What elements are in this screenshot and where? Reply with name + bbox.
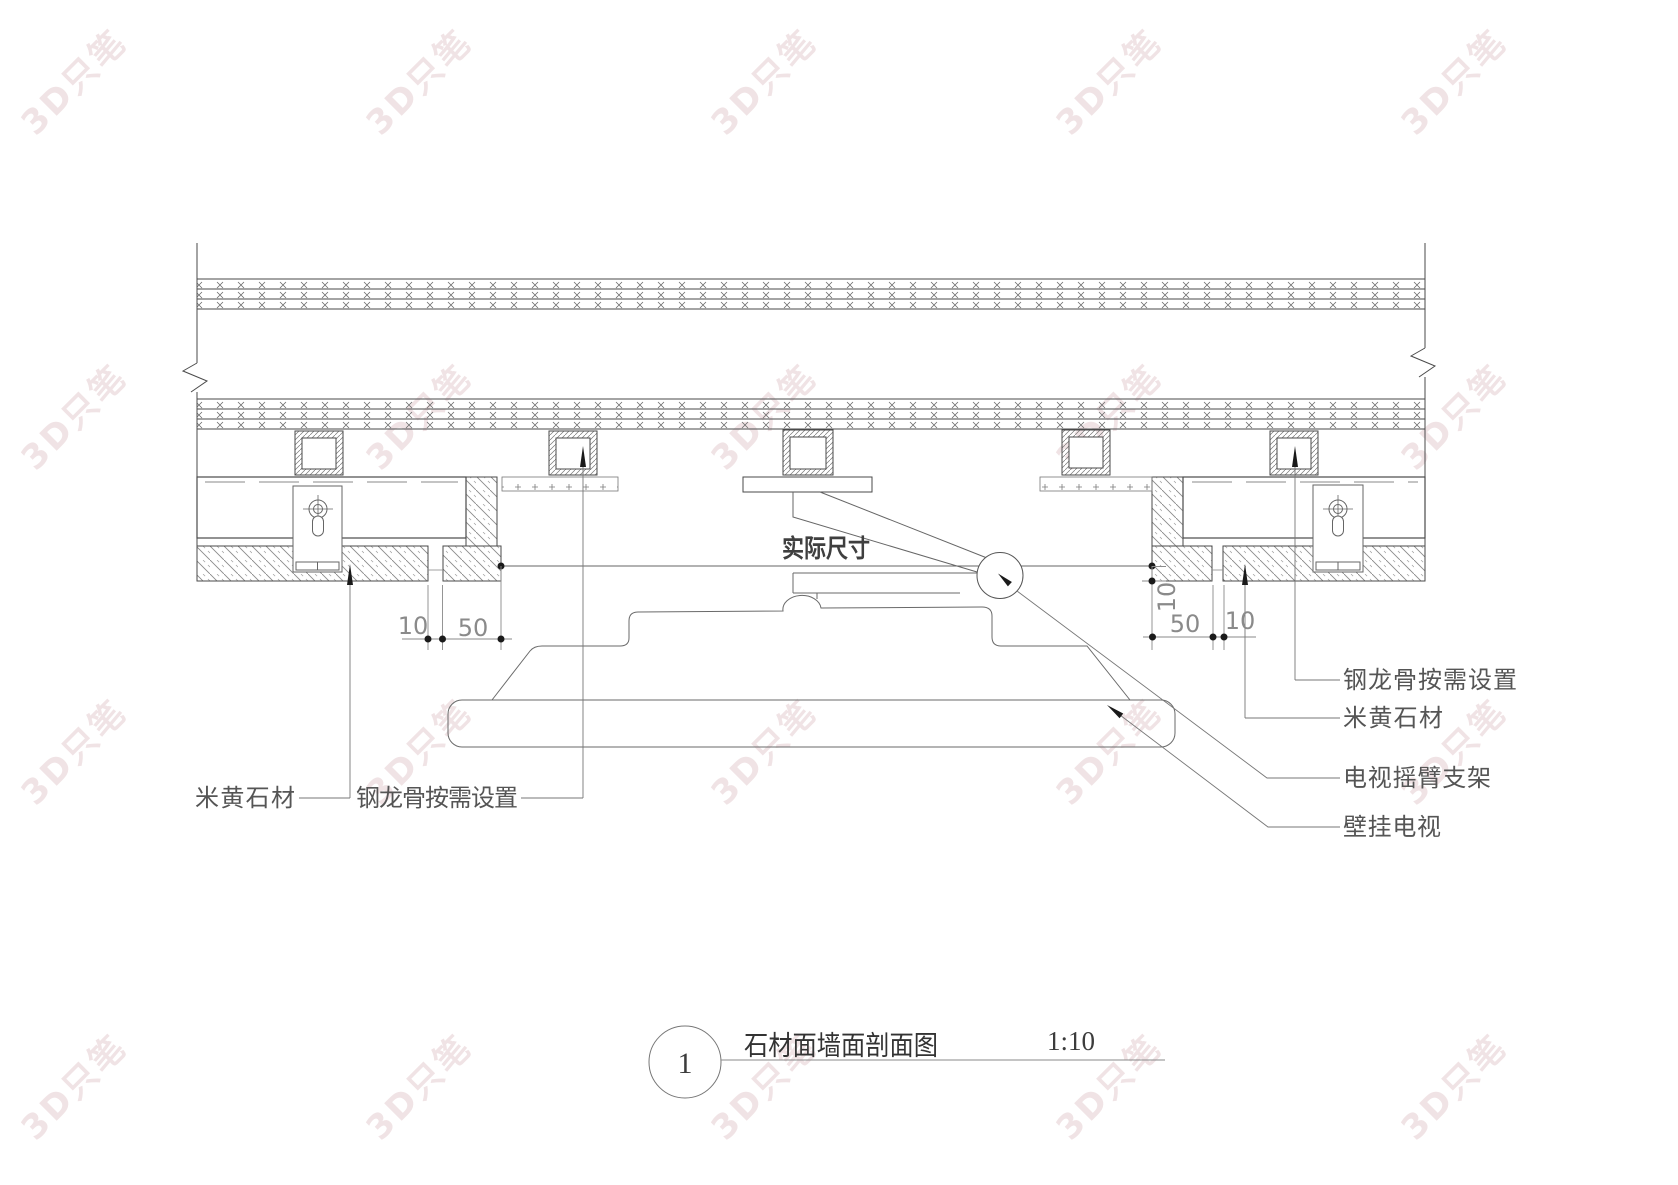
label-actual-size: 实际尺寸	[782, 534, 870, 563]
drawing-scale: 1:10	[1047, 1026, 1095, 1056]
section-drawing: 实际尺寸 米黄石材 钢龙骨按需设置 钢龙骨按需设置 米黄石材 电视摇臂支架 壁挂…	[0, 0, 1678, 1185]
leader-stone-right	[1242, 564, 1340, 718]
label-keel-right: 钢龙骨按需设置	[1343, 666, 1517, 694]
tv-outline	[492, 573, 1130, 700]
anchor-bracket-right	[1313, 485, 1363, 572]
leader-keel-left	[521, 446, 586, 798]
drawing-title: 石材面墙面剖面图	[744, 1031, 938, 1062]
steel-keel-4	[1062, 430, 1110, 475]
break-mark-left	[183, 363, 207, 392]
leader-stone-left	[299, 564, 353, 798]
label-tv: 壁挂电视	[1343, 813, 1441, 841]
dim-right-face-offset: 10	[1153, 582, 1181, 613]
slab-band-top	[197, 279, 1425, 309]
label-stone-right: 米黄石材	[1343, 704, 1443, 732]
dim-right-return: 50	[1170, 610, 1201, 638]
steel-keel-3	[783, 430, 833, 475]
actual-size-line	[498, 563, 1156, 570]
stone-band-right	[1152, 546, 1425, 581]
leader-arrow	[1107, 705, 1123, 718]
pivot-circle	[977, 553, 1023, 599]
label-stone-left: 米黄石材	[195, 784, 295, 812]
rail-right	[1183, 477, 1425, 538]
tv-screen-bar	[448, 700, 1175, 747]
dim-right-joint: 10	[1225, 607, 1256, 635]
tv-mount-plate	[743, 477, 872, 492]
steel-keel-1	[295, 431, 343, 475]
dim-left-joint: 10	[398, 612, 429, 640]
slab-band-inner	[197, 399, 1425, 429]
leader-tv	[1107, 705, 1340, 827]
adhesive-strip-left	[502, 477, 618, 491]
cad-sheet: 3D只笔3D只笔3D只笔3D只笔3D只笔3D只笔3D只笔3D只笔3D只笔3D只笔…	[0, 0, 1678, 1185]
steel-keel-2	[549, 431, 597, 475]
label-tv-arm: 电视摇臂支架	[1343, 764, 1491, 792]
detail-number: 1	[678, 1047, 693, 1080]
label-keel-left: 钢龙骨按需设置	[356, 784, 518, 812]
stone-return-right	[1152, 477, 1183, 546]
break-mark-right	[1411, 348, 1435, 377]
adhesive-strip-right	[1040, 477, 1152, 491]
stone-return-left	[466, 477, 497, 546]
title-block: 1 石材面墙面剖面图 1:10	[649, 1026, 1165, 1098]
anchor-bracket-left	[293, 486, 342, 572]
dim-left-return: 50	[458, 614, 489, 642]
